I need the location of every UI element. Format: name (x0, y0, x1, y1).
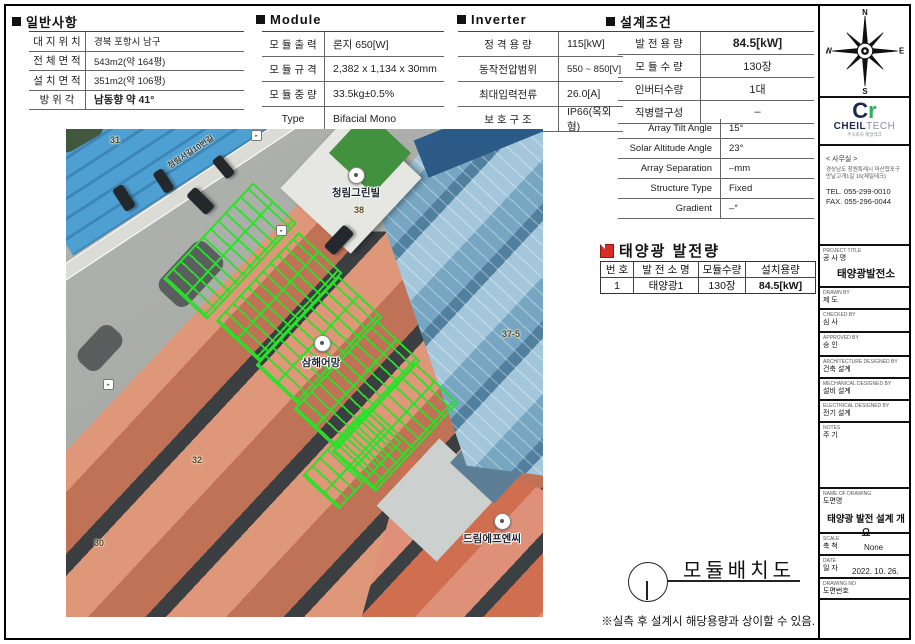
field-mechanical: MECHANICAL DESIGNED BY 설비 설계 (820, 379, 909, 401)
parcel-label: 32 (192, 455, 202, 465)
table-row: 발 전 용 량84.5[kW] (618, 32, 814, 55)
field-drawn-by: DRAWN BY 제 도 (820, 288, 909, 310)
drawing-title-symbol-stub (646, 581, 648, 600)
table-row: 설 치 면 적351m2(약 106평) (29, 71, 244, 91)
module-section-header: Module (256, 12, 322, 27)
field-electrical: ELECTRICAL DESIGNED BY 전기 설계 (820, 401, 909, 423)
square-bullet-icon (457, 15, 466, 24)
poi-label: 청림그린빌 (301, 185, 411, 200)
field-scale: SCALE 축 척 None (820, 534, 909, 556)
office-info: < 사무실 > 경상남도 창원특례시 마산합포구 만날고개1길 16(제일테크)… (820, 146, 909, 246)
table-row: 동작전압범위550 ~ 850[V] (458, 57, 623, 82)
field-approved-by: APPROVED BY 승 인 (820, 333, 909, 357)
table-row: Array Tilt Angle15° (618, 119, 814, 139)
parcel-label: 37-5 (502, 329, 520, 339)
design-table-kr: 발 전 용 량84.5[kW] 모 듈 수 량130장 인버터수량1대 직병렬구… (618, 31, 814, 124)
general-section-header: 일반사항 (12, 12, 78, 31)
field-name-of-drawing: NAME OF DRAWING 도면명 태양광 발전 설계 개요 (820, 489, 909, 534)
entrance-marker-icon: ▸ (276, 225, 287, 236)
red-flag-icon (600, 244, 614, 258)
svg-text:N: N (862, 8, 868, 17)
square-bullet-icon (256, 15, 265, 24)
table-row: 방 위 각남동향 약 41° (29, 91, 244, 111)
table-row: 인버터수량1대 (618, 78, 814, 101)
compass: N S W E (820, 6, 909, 98)
parcel-label: 38 (354, 205, 364, 215)
generation-table: 번 호 발 전 소 명 모듈수량 설치용량 1 태양광1 130장 84.5[k… (600, 261, 816, 294)
field-project-title: PROJECT TITLE 공 사 명 태양광발전소 (820, 246, 909, 288)
parcel-label: 31 (110, 135, 120, 145)
field-date: DATE 일 자 2022. 10. 26. (820, 556, 909, 579)
footnote: ※실측 후 설계시 해당용량과 상이할 수 있음. (560, 613, 815, 629)
poi-label: 드림에프엔씨 (438, 531, 543, 546)
table-row: 모 듈 수 량130장 (618, 55, 814, 78)
company-logo: Cr CHEILTECH 주식회사 제일테크 (820, 98, 909, 146)
svg-text:S: S (862, 87, 867, 94)
satellite-map: 청림서길10번길 ▸ ▸ ▸ 청림그린빌 삼해어망 드림에프엔씨 31 38 3… (66, 129, 543, 617)
field-architecture: ARCHITECTURE DESIGNED BY 건축 설계 (820, 357, 909, 379)
general-table: 대 지 위 치경북 포항시 남구 전 체 면 적543m2(약 164평) 설 … (29, 31, 244, 110)
table-row: 모 듈 출 력론지 650[W] (262, 32, 444, 57)
inverter-table: 정 격 용 량115[kW] 동작전압범위550 ~ 850[V] 최대입력전류… (458, 31, 623, 132)
table-row: Gradient–° (618, 199, 814, 219)
map-pin-icon (314, 335, 331, 352)
table-header-row: 번 호 발 전 소 명 모듈수량 설치용량 (601, 262, 815, 278)
square-bullet-icon (12, 17, 21, 26)
map-pin-icon (494, 513, 511, 530)
table-row: Structure TypeFixed (618, 179, 814, 199)
compass-rose-icon: N S W E (826, 8, 904, 94)
square-bullet-icon (606, 17, 615, 26)
table-row: 모 듈 중 량33.5kg±0.5% (262, 82, 444, 107)
drawing-title: 모듈배치도 (683, 554, 795, 583)
table-row: 대 지 위 치경북 포항시 남구 (29, 32, 244, 52)
design-section-header: 설계조건 (606, 12, 672, 31)
poi-label: 삼해어망 (276, 355, 366, 370)
table-row: Solar Altitude Angle23° (618, 139, 814, 159)
field-notes: NOTES 주 기 (820, 423, 909, 489)
design-table-en: Array Tilt Angle15° Solar Altitude Angle… (618, 119, 814, 219)
table-row: 1 태양광1 130장 84.5[kW] (601, 278, 815, 293)
title-block: N S W E Cr CHEILTECH 주식회사 제일테크 < 사무실 > 경… (818, 4, 911, 640)
entrance-marker-icon: ▸ (251, 130, 262, 141)
table-row: 정 격 용 량115[kW] (458, 32, 623, 57)
table-row: Array Separation–mm (618, 159, 814, 179)
drawing-title-symbol (628, 562, 668, 602)
map-pin-icon (348, 167, 365, 184)
module-table: 모 듈 출 력론지 650[W] 모 듈 규 격2,382 x 1,134 x … (262, 31, 444, 132)
svg-text:W: W (826, 46, 833, 55)
svg-text:E: E (899, 46, 904, 55)
entrance-marker-icon: ▸ (103, 379, 114, 390)
field-empty (820, 600, 909, 638)
table-row: 전 체 면 적543m2(약 164평) (29, 52, 244, 72)
field-checked-by: CHECKED BY 심 사 (820, 310, 909, 333)
field-drawing-no: DRAWING NO 도면번호 (820, 579, 909, 600)
generation-section-header: 태양광 발전량 (600, 240, 720, 261)
inverter-section-header: Inverter (457, 12, 527, 27)
parcel-label: 30 (94, 538, 104, 548)
table-row: 모 듈 규 격2,382 x 1,134 x 30mm (262, 57, 444, 82)
